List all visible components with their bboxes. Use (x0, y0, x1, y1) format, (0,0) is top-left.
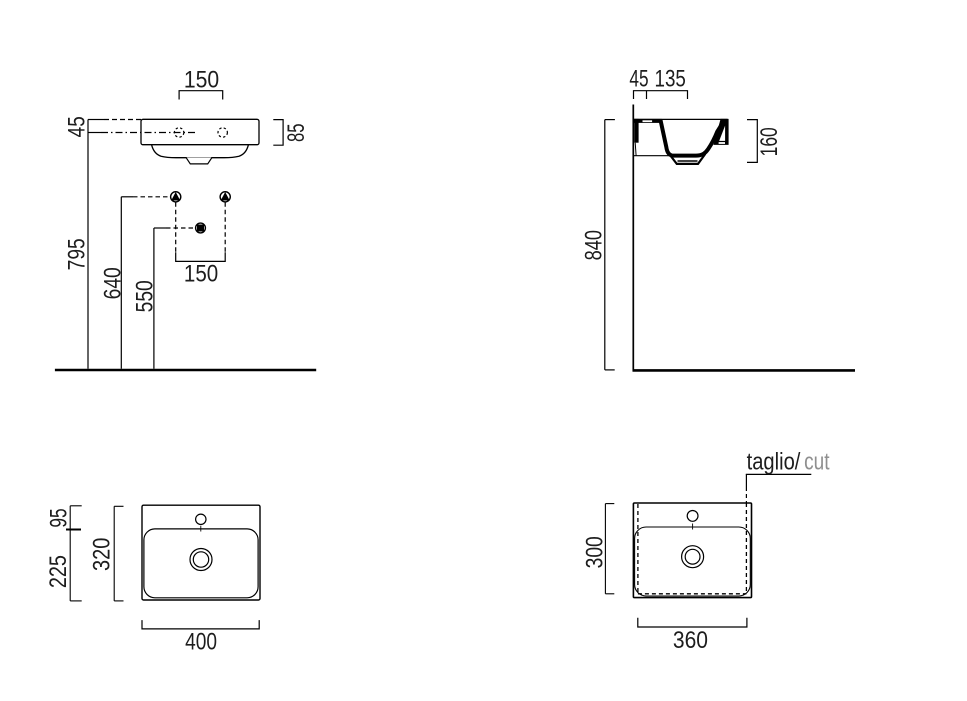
svg-text:840: 840 (580, 230, 607, 260)
svg-text:150: 150 (184, 66, 219, 93)
svg-text:45: 45 (63, 116, 90, 137)
svg-text:225: 225 (45, 555, 72, 588)
svg-text:360: 360 (673, 627, 708, 654)
svg-text:cut: cut (804, 448, 830, 475)
svg-text:135: 135 (655, 65, 686, 92)
svg-text:taglio/: taglio/ (747, 448, 801, 475)
svg-text:85: 85 (283, 123, 310, 142)
svg-text:795: 795 (63, 238, 90, 270)
svg-text:300: 300 (581, 536, 608, 568)
svg-text:95: 95 (45, 508, 72, 527)
svg-text:550: 550 (131, 280, 158, 312)
svg-text:400: 400 (185, 628, 217, 655)
svg-text:320: 320 (89, 538, 116, 571)
svg-text:640: 640 (99, 267, 126, 299)
svg-text:45: 45 (629, 65, 648, 92)
svg-text:150: 150 (184, 260, 218, 287)
svg-text:160: 160 (756, 127, 783, 156)
